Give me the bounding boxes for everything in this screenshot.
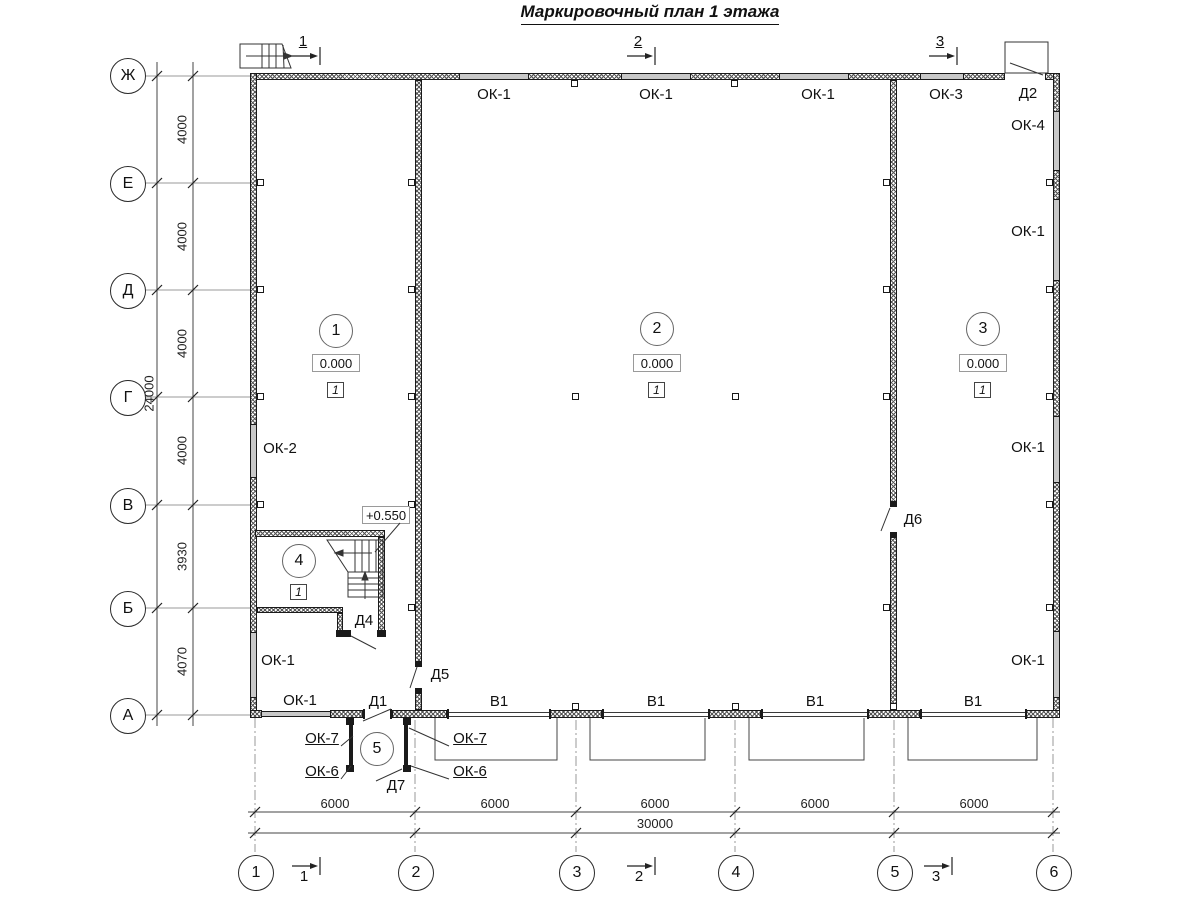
wall-cap: [377, 630, 386, 637]
pilaster-tick: [257, 286, 264, 293]
gate-jamb: [708, 709, 710, 719]
label-d5: Д5: [424, 667, 456, 682]
label-ok1-left: ОК-1: [254, 653, 302, 668]
column-tick: [572, 703, 579, 710]
section-mark-top-3: 3: [933, 34, 947, 49]
label-v1-1: В1: [465, 694, 533, 709]
wall-bottom-corner-left: [250, 710, 262, 718]
wall-top-3: [690, 73, 780, 80]
gate-jamb: [549, 709, 551, 719]
axis-col-3: 3: [559, 855, 595, 891]
room-1-elevation: 0.000: [312, 354, 360, 372]
vestibule-wall-left: [349, 718, 353, 772]
axis-row-e: Е: [110, 166, 146, 202]
window-ok4-right: [1053, 112, 1060, 170]
dim-left-1: 4000: [176, 105, 189, 155]
label-d2: Д2: [1012, 86, 1044, 101]
gate-jamb: [920, 709, 922, 719]
section-mark-bottom-3: 3: [929, 869, 943, 884]
label-d1: Д1: [362, 694, 394, 709]
axis-col-4: 4: [718, 855, 754, 891]
label-ok1-right-2: ОК-1: [1004, 440, 1052, 455]
label-ok1-top-3: ОК-1: [782, 87, 854, 102]
label-ok7-right: ОК-7: [448, 731, 492, 746]
room-2-floor-type: 1: [648, 382, 665, 398]
pilaster-tick: [1046, 179, 1053, 186]
wall-right-1: [1053, 73, 1060, 112]
room-5-number: 5: [360, 732, 394, 766]
axis-col-1: 1: [238, 855, 274, 891]
wall-top-1: [250, 73, 460, 80]
room-2-number: 2: [640, 312, 674, 346]
axis-row-zh: Ж: [110, 58, 146, 94]
wall-stairwell-top: [255, 530, 385, 537]
gate-jamb: [602, 709, 604, 719]
door-d5-cap: [415, 661, 422, 667]
gate-jamb: [447, 709, 449, 719]
room-4-floor-type: 1: [290, 584, 307, 600]
free-column: [572, 393, 579, 400]
wall-right-2: [1053, 170, 1060, 200]
window-ok1-right-2: [1053, 417, 1060, 482]
gate-v1-4: [920, 712, 1026, 717]
free-column: [732, 393, 739, 400]
section-mark-bottom-1: 1: [297, 869, 311, 884]
dim-left-6: 4070: [176, 637, 189, 687]
label-ok1-top-2: ОК-1: [622, 87, 690, 102]
label-ok1-right-3: ОК-1: [1004, 653, 1052, 668]
window-ok1-right-3: [1053, 632, 1060, 697]
label-ok6-right: ОК-6: [448, 764, 492, 779]
pilaster-tick: [257, 501, 264, 508]
axis-col-6: 6: [1036, 855, 1072, 891]
axis-col-5: 5: [877, 855, 913, 891]
door-d6-cap: [890, 501, 897, 507]
wall-interior-axis5-upper: [890, 80, 897, 507]
floor-plan-canvas: Маркировочный план 1 этажа: [0, 0, 1200, 900]
pilaster-tick: [883, 286, 890, 293]
label-ok7-left: ОК-7: [300, 731, 344, 746]
wall-bottom-corner-right: [1026, 710, 1060, 718]
pilaster-tick: [1046, 393, 1053, 400]
door-d2-leaf-rect: [1005, 42, 1048, 73]
wall-left-2: [250, 477, 257, 633]
pilaster-tick: [1046, 286, 1053, 293]
dim-bottom-3: 6000: [621, 797, 689, 810]
wall-bottom-2: [392, 710, 447, 718]
label-ok6-left: ОК-6: [300, 764, 344, 779]
window-ok1-top-1: [460, 73, 528, 80]
room-4-number: 4: [282, 544, 316, 578]
window-ok3-top: [921, 73, 963, 80]
section-mark-top-1: 1: [296, 34, 310, 49]
pilaster-tick: [883, 393, 890, 400]
pilaster-tick: [257, 179, 264, 186]
axis-row-d: Д: [110, 273, 146, 309]
pilaster-tick: [257, 393, 264, 400]
pilaster-tick: [408, 393, 415, 400]
label-v1-4: В1: [939, 694, 1007, 709]
door-d1-jamb: [390, 709, 392, 719]
axis-row-a: А: [110, 698, 146, 734]
label-ok4: ОК-4: [1004, 118, 1052, 133]
window-ok1-right-1: [1053, 200, 1060, 280]
vestibule-cap: [346, 718, 354, 725]
window-ok1-bottom: [262, 711, 330, 717]
room-1-number: 1: [319, 314, 353, 348]
vestibule-cap: [403, 718, 411, 725]
gate-jamb: [1025, 709, 1027, 719]
window-ok1-top-3: [780, 73, 848, 80]
wall-bottom-pier-4: [709, 710, 761, 718]
label-v1-3: В1: [781, 694, 849, 709]
window-ok1-top-2: [622, 73, 690, 80]
dim-left-5: 3930: [176, 532, 189, 582]
label-ok1-bottom: ОК-1: [266, 693, 334, 708]
stair-landing-elevation: +0.550: [362, 506, 410, 524]
label-ok1-right-1: ОК-1: [1004, 224, 1052, 239]
pilaster-tick: [1046, 501, 1053, 508]
wall-right-3: [1053, 280, 1060, 417]
door-d1-jamb: [363, 709, 365, 719]
column-tick: [890, 703, 897, 710]
wall-top-4: [848, 73, 921, 80]
drawing-title-text: Маркировочный план 1 этажа: [521, 2, 780, 25]
room-3-number: 3: [966, 312, 1000, 346]
gate-v1-1: [447, 712, 550, 717]
axis-row-g: Г: [110, 380, 146, 416]
room-3-elevation: 0.000: [959, 354, 1007, 372]
room-2-elevation: 0.000: [633, 354, 681, 372]
label-ok2-left: ОК-2: [256, 441, 304, 456]
wall-top-2: [528, 73, 622, 80]
vestibule-wall-right: [404, 718, 408, 772]
label-d6: Д6: [897, 512, 929, 527]
dim-left-4: 4000: [176, 426, 189, 476]
room-3-floor-type: 1: [974, 382, 991, 398]
vestibule-cap: [403, 765, 411, 772]
pilaster-tick: [883, 604, 890, 611]
wall-bottom-1: [330, 710, 363, 718]
pilaster-tick: [408, 179, 415, 186]
column-tick: [571, 80, 578, 87]
section-mark-top-2: 2: [631, 34, 645, 49]
column-tick: [732, 703, 739, 710]
gate-jamb: [761, 709, 763, 719]
wall-cap: [336, 630, 351, 637]
axis-row-v: В: [110, 488, 146, 524]
door-d6-cap: [890, 532, 897, 538]
dim-bottom-4: 6000: [781, 797, 849, 810]
door-d5-cap: [415, 688, 422, 694]
dim-left-2: 4000: [176, 212, 189, 262]
room-1-floor-type: 1: [327, 382, 344, 398]
column-tick: [731, 80, 738, 87]
pilaster-tick: [408, 604, 415, 611]
label-ok1-top-1: ОК-1: [460, 87, 528, 102]
label-d7: Д7: [379, 778, 413, 793]
label-ok3-top: ОК-3: [912, 87, 980, 102]
pilaster-tick: [883, 179, 890, 186]
wall-left-1: [250, 73, 257, 425]
axis-row-b: Б: [110, 591, 146, 627]
entrance-stair-icon: [240, 44, 292, 68]
gate-jamb: [867, 709, 869, 719]
dim-bottom-total: 30000: [616, 817, 694, 830]
dim-bottom-2: 6000: [461, 797, 529, 810]
gate-v1-3: [761, 712, 868, 717]
drawing-title: Маркировочный план 1 этажа: [405, 2, 895, 25]
section-mark-bottom-2: 2: [632, 869, 646, 884]
wall-interior-axis2-upper: [415, 80, 422, 667]
pilaster-tick: [408, 286, 415, 293]
wall-bottom-pier-3: [550, 710, 602, 718]
pilaster-tick: [1046, 604, 1053, 611]
vestibule-cap: [346, 765, 354, 772]
wall-bottom-pier-5: [868, 710, 920, 718]
wall-interior-axis5-lower: [890, 532, 897, 710]
stair-flight-icon: [327, 540, 383, 599]
gate-v1-2: [602, 712, 709, 717]
wall-right-4: [1053, 482, 1060, 632]
dim-bottom-5: 6000: [940, 797, 1008, 810]
dim-left-3: 4000: [176, 319, 189, 369]
wall-stairwell-bottom: [257, 607, 343, 613]
label-d4: Д4: [347, 613, 381, 628]
wall-top-5: [963, 73, 1005, 80]
axis-col-2: 2: [398, 855, 434, 891]
label-v1-2: В1: [622, 694, 690, 709]
dim-bottom-1: 6000: [301, 797, 369, 810]
